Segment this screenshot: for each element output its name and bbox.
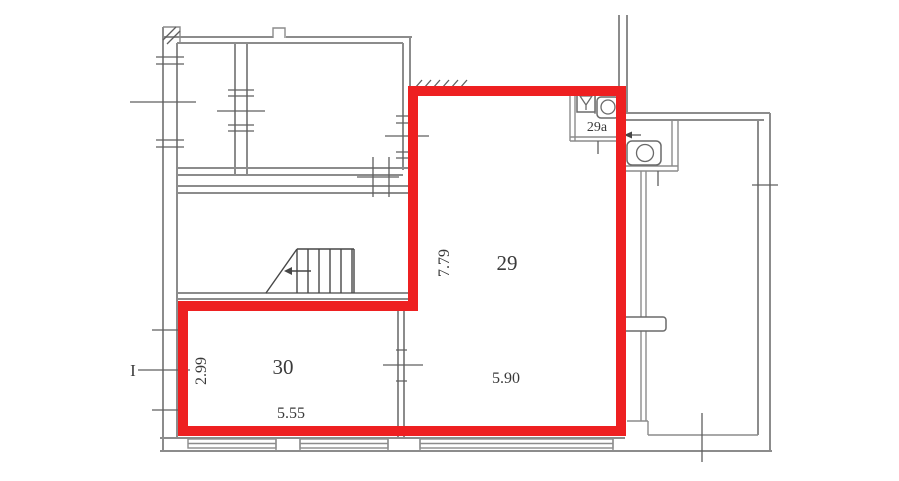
room-divider-wall [398, 310, 404, 438]
right-wing-walls [619, 15, 770, 451]
room-30-depth-dim: 2.99 [193, 357, 210, 385]
floor-plan: 29 7.79 5.90 30 2.99 5.55 29a I [0, 0, 899, 481]
window-1 [188, 439, 276, 448]
room-30-label: 30 [273, 355, 294, 379]
room-29-depth-dim: 7.79 [436, 249, 453, 277]
dimension-ticks [130, 57, 778, 462]
room-30-width-dim: 5.55 [277, 405, 305, 422]
axis-label: I [130, 361, 136, 380]
room-29-width-dim: 5.90 [492, 370, 520, 387]
room-29a-label: 29a [587, 120, 608, 135]
window-2 [300, 439, 388, 448]
sink-icon [597, 97, 619, 118]
floor-plan-drawing: 29 7.79 5.90 30 2.99 5.55 29a I [0, 0, 899, 481]
window-3 [420, 439, 613, 448]
door-swing-icon [624, 132, 641, 139]
windows [188, 438, 613, 451]
toilet-icon [627, 141, 661, 165]
interior-walls [177, 37, 410, 438]
room-29-label: 29 [497, 251, 518, 275]
radiator-icon [622, 317, 666, 331]
corner-hatch [163, 27, 180, 44]
